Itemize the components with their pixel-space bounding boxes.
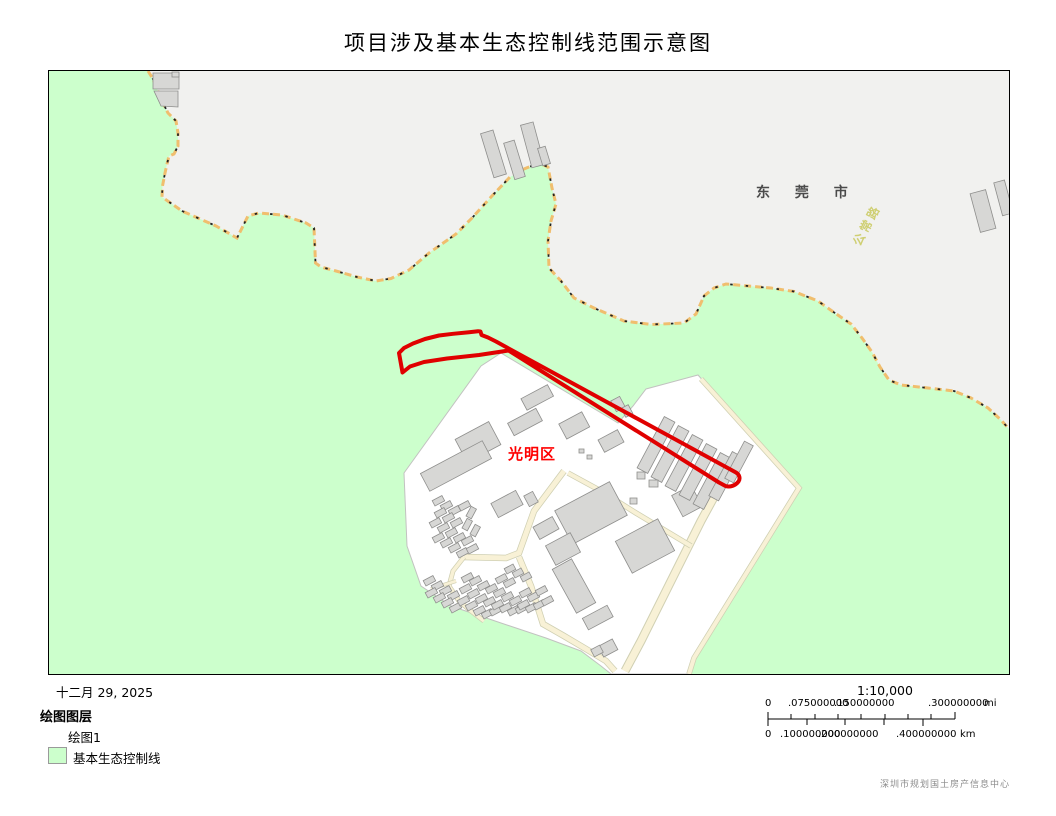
legend-swatch-eco-line <box>48 747 67 764</box>
city-label: 东 莞 市 <box>756 184 858 201</box>
scale-km-3: .400000000 <box>896 729 956 740</box>
legend-item-eco-line: 基本生态控制线 <box>73 748 161 767</box>
legend-title: 绘图图层 <box>40 706 92 725</box>
scale-bar-ticks <box>760 711 1010 727</box>
map-viewport: 东 莞 市 公常路 光明区 <box>48 70 1010 675</box>
scale-bar: 0 .075000000 .150000000 .300000000 mi 0 … <box>760 698 1010 742</box>
scale-km-0: 0 <box>765 729 771 740</box>
map-date: 十二月 29, 2025 <box>56 682 153 701</box>
page-title: 项目涉及基本生态控制线范围示意图 <box>0 27 1056 57</box>
scale-km-2: .200000000 <box>818 729 878 740</box>
scale-km-unit: km <box>960 729 976 740</box>
scale-mi-3: .300000000 <box>928 698 988 709</box>
legend-item-drawing: 绘图1 <box>68 727 101 746</box>
map-canvas: 东 莞 市 公常路 光明区 <box>49 71 1009 674</box>
scale-mi-2: .150000000 <box>834 698 894 709</box>
district-label: 光明区 <box>507 445 556 463</box>
scale-mi-unit: mi <box>984 698 997 709</box>
credit-text: 深圳市规划国土房产信息中心 <box>880 777 1010 790</box>
scale-mi-0: 0 <box>765 698 771 709</box>
scale-ratio: 1:10,000 <box>760 683 1010 698</box>
